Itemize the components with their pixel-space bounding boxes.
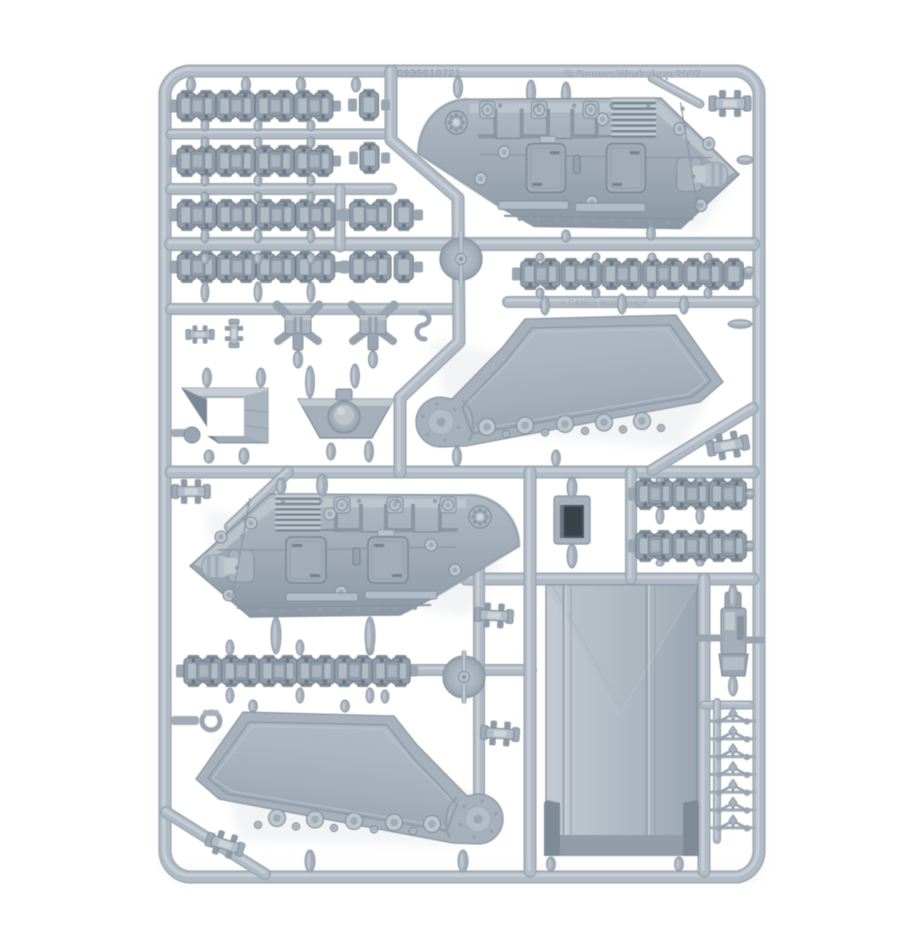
- svg-text:© Games Workshop 2007: © Games Workshop 2007: [563, 68, 700, 80]
- svg-text:0999010721: 0999010721: [397, 68, 461, 80]
- svg-text:© GAMES WORKSHOP: © GAMES WORKSHOP: [560, 299, 648, 308]
